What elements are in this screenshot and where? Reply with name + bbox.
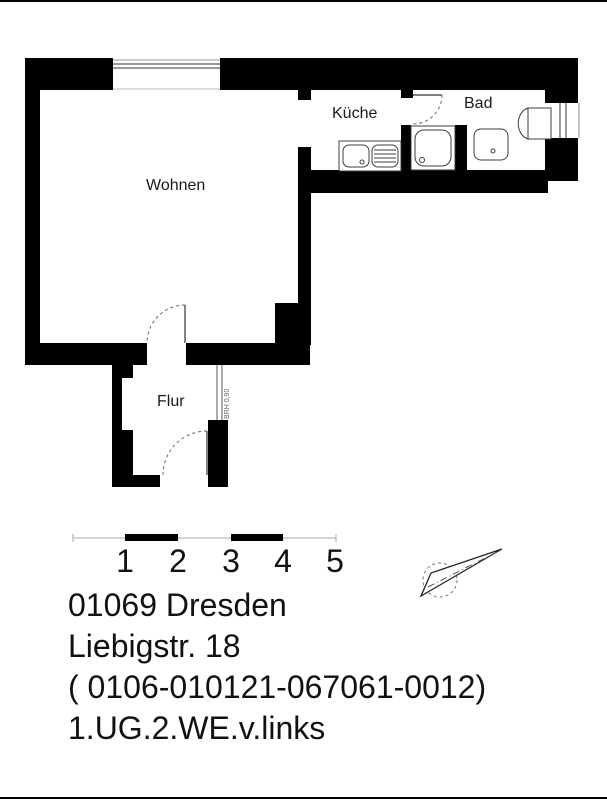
shower: [411, 126, 455, 170]
living-room-window: [113, 58, 220, 90]
entrance-door: [163, 431, 207, 475]
floorplan-page: Wohnen Küche Bad Flur BRH 0,90 1 2 3 4 5…: [0, 0, 607, 800]
room-label-bath: Bad: [464, 95, 492, 113]
page-border-bottom: [0, 797, 607, 799]
hall-window: [217, 365, 222, 420]
address-city: 01069 Dresden: [68, 585, 486, 626]
room-label-kitchen: Küche: [332, 105, 377, 123]
scale-label-5: 5: [321, 543, 349, 580]
hall-window-annotation: BRH 0,90: [224, 365, 231, 419]
scale-label-4: 4: [269, 543, 297, 580]
scale-label-2: 2: [164, 543, 192, 580]
address-street: Liebigstr. 18: [68, 626, 486, 667]
bath-door: [413, 95, 442, 124]
scale-label-1: 1: [111, 543, 139, 580]
washbasin: [474, 129, 508, 160]
living-hall-door: [147, 305, 185, 343]
room-label-hall: Flur: [157, 393, 185, 411]
toilet: [518, 108, 551, 139]
address-unit: 1.UG.2.WE.v.links: [68, 708, 486, 749]
scale-label-3: 3: [217, 543, 245, 580]
walls: [25, 58, 578, 487]
room-label-living: Wohnen: [146, 177, 205, 195]
address-reference: ( 0106-010121-067061-0012): [68, 667, 486, 708]
kitchen-sink: [339, 141, 401, 171]
scale-bar: [73, 534, 336, 542]
address-block: 01069 Dresden Liebigstr. 18 ( 0106-01012…: [68, 585, 486, 749]
floor-plan: [0, 0, 607, 620]
